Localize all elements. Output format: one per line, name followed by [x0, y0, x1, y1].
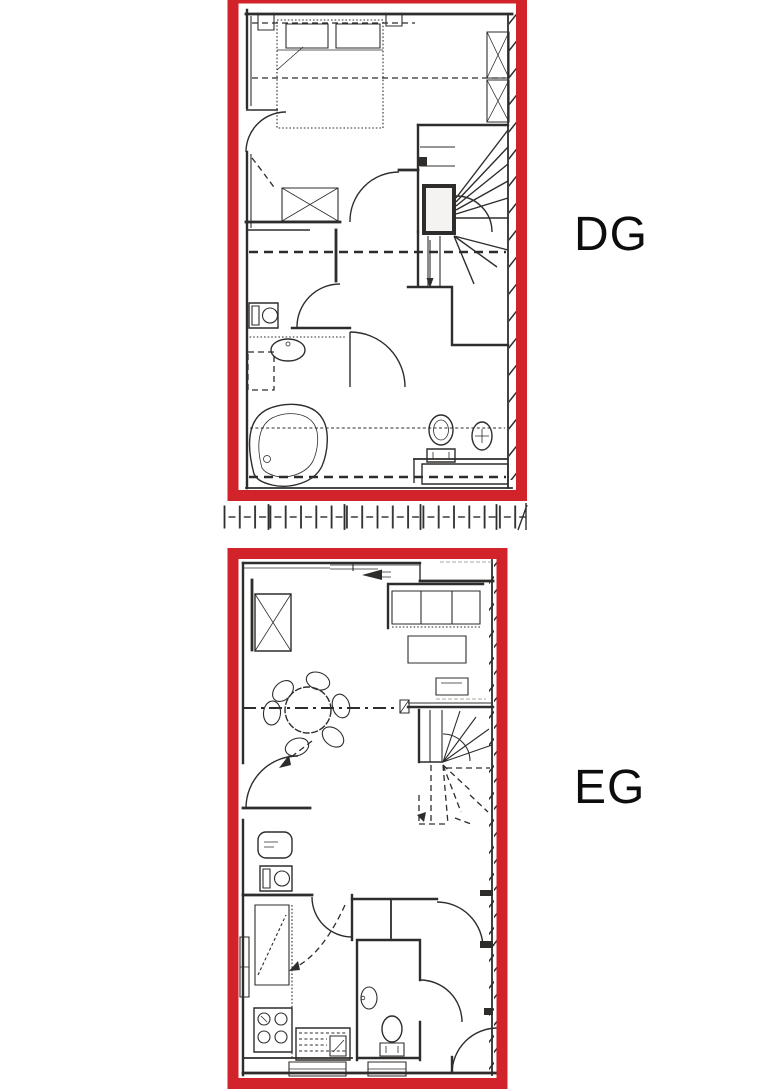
dg-washing-machine	[249, 303, 278, 328]
eg-cabinet-x	[252, 580, 291, 651]
dg-floor-label: DG	[574, 211, 648, 259]
eg-winder-staircase	[408, 699, 493, 824]
dg-hall-door-arc	[350, 172, 399, 222]
eg-kitchen-sink-unit	[296, 1028, 350, 1060]
eg-direction-arrow	[279, 741, 312, 768]
eg-sideboard	[436, 678, 468, 695]
eg-sofa	[388, 584, 483, 628]
eg-plan	[240, 560, 500, 1076]
dg-corner-bathtub	[250, 404, 328, 486]
eg-kitchen	[240, 832, 352, 1060]
dg-wardrobe-right	[487, 32, 509, 122]
eg-dining-table	[262, 669, 352, 759]
scanned-floorplan-page: DG EG	[0, 0, 768, 1092]
dg-nightstand-right	[386, 14, 402, 26]
dg-bath-doors	[292, 284, 405, 387]
dg-roof-lines	[249, 23, 506, 477]
eg-kitchen-arrow	[289, 961, 300, 971]
eg-living-door	[243, 756, 310, 808]
floor-plans-drawing	[0, 0, 768, 1092]
dg-red-frame	[233, 0, 522, 496]
eg-mid-walls	[352, 895, 493, 945]
eg-stove	[254, 1008, 292, 1052]
eg-rear-door-arc	[437, 902, 483, 948]
dg-bedroom-door	[246, 110, 286, 190]
dg-vanity-counter	[414, 459, 508, 484]
dg-plan	[246, 10, 517, 488]
dg-toilet	[427, 415, 455, 462]
eg-washing-machine	[260, 866, 292, 891]
eg-stair-understair-dashed	[417, 765, 490, 824]
eg-wc-toilet	[380, 1016, 404, 1056]
dg-cabinet-dashed	[248, 352, 274, 390]
eg-fridge	[255, 905, 289, 985]
dg-stair-core	[424, 186, 454, 233]
eg-floor-label: EG	[574, 764, 645, 812]
scale-tick-strip	[222, 503, 527, 530]
eg-red-frame	[233, 554, 502, 1084]
eg-outer-walls	[243, 560, 500, 1075]
dg-hall-walls	[246, 157, 427, 281]
eg-boiler	[258, 832, 292, 858]
eg-balcony-door	[330, 563, 420, 580]
dg-nightstand-left	[258, 14, 274, 30]
dg-bed	[277, 20, 383, 128]
dg-sink	[271, 339, 305, 361]
dg-party-wall-hatch	[509, 14, 517, 480]
eg-kitchen-window	[240, 937, 249, 997]
eg-kitchen-door-swing-dashed	[294, 905, 345, 968]
eg-coffee-table	[408, 636, 466, 663]
dg-bidet	[472, 422, 492, 450]
eg-wc-sink	[361, 987, 377, 1009]
eg-wc	[357, 940, 462, 1060]
dg-wardrobe-mid	[282, 188, 338, 221]
